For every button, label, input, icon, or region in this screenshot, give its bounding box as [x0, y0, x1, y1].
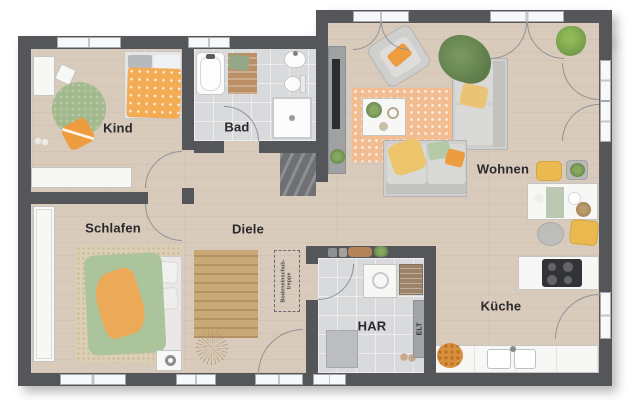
bowl: [576, 202, 591, 217]
pantry-herbs: [374, 246, 388, 257]
dried-plant: [196, 331, 228, 365]
tv-sideboard: [328, 46, 346, 174]
sofa-cushion: [455, 105, 493, 145]
shower-drain: [289, 115, 295, 121]
duvet-orange: [126, 67, 182, 119]
shelf-rack: [399, 264, 423, 295]
plant: [330, 149, 345, 164]
entrance-door: [255, 374, 303, 385]
freezer: [326, 330, 358, 368]
room-label-bad: Bad: [224, 120, 249, 135]
attic-stairs-hatch: Bodeneinschub-treppe: [274, 250, 300, 312]
table-runner: [546, 187, 564, 218]
floor-plan: ELT Bodeneinschub-treppe: [0, 0, 629, 400]
pantry-jar: [328, 248, 337, 257]
sink-faucet: [510, 346, 516, 352]
sideboard: [31, 167, 132, 188]
duvet-green: [83, 252, 166, 356]
window-schlafen: [60, 374, 126, 385]
plate: [534, 193, 544, 203]
washing-machine: [363, 264, 397, 298]
pillow: [128, 55, 152, 68]
dining-table: [527, 183, 598, 220]
wardrobe-door: [36, 209, 52, 359]
window-kind: [57, 37, 121, 48]
sofa-backrest: [493, 61, 505, 147]
terrace-door: [600, 292, 611, 339]
pantry-bread: [348, 247, 372, 257]
nightstand: [156, 350, 182, 371]
pillow: [154, 55, 180, 68]
shower: [272, 97, 312, 139]
shoe-cabinet: [280, 153, 316, 196]
plant: [570, 163, 585, 177]
bed-kind: [124, 51, 182, 119]
sink-basin: [487, 349, 511, 369]
window-right-upper: [600, 60, 611, 101]
hallway-runner: [194, 250, 258, 338]
bowl: [379, 122, 388, 131]
wall-kind-schlafen: [31, 192, 148, 204]
washbasin: [284, 51, 306, 68]
wall-partition-living: [316, 10, 328, 182]
wardrobe: [33, 206, 55, 362]
basin-faucet: [293, 51, 298, 56]
bathtub: [196, 52, 225, 95]
kitchen-island: [518, 256, 599, 290]
wall-stub: [182, 188, 194, 204]
wall-bad-diele-b: [259, 141, 316, 153]
wall-kind-bad: [182, 49, 194, 150]
room-label-schlafen: Schlafen: [85, 221, 141, 236]
towel: [228, 54, 250, 71]
room-label-diele: Diele: [232, 222, 264, 237]
washer-door: [372, 272, 389, 289]
room-label-wohnen: Wohnen: [477, 162, 529, 177]
room-label-har: HAR: [358, 319, 387, 334]
attic-stairs-label: Bodeneinschub-treppe: [281, 252, 294, 310]
wall-har-left-b: [306, 300, 318, 373]
coffee-table: [362, 98, 406, 136]
room-label-kind: Kind: [103, 121, 133, 136]
harvest-basket: [437, 343, 463, 368]
table-plant: [366, 102, 382, 118]
window-wohnen-1: [353, 11, 409, 22]
lamp: [165, 355, 176, 366]
desk: [33, 56, 55, 96]
window-bad: [188, 37, 230, 48]
elt-label: ELT: [416, 323, 423, 336]
window-right-lower: [600, 101, 611, 142]
pouf: [537, 222, 564, 246]
sink-basin: [514, 349, 536, 369]
toilet: [284, 76, 301, 92]
window-diele: [176, 374, 216, 385]
sofa-section-horizontal: [383, 140, 467, 197]
wall-left: [18, 36, 31, 386]
pantry-jar: [339, 248, 347, 257]
bathtub-basin: [200, 56, 221, 91]
wall-bad-diele-a: [194, 141, 224, 153]
dining-chair-yellow: [569, 219, 599, 247]
room-label-kueche: Küche: [481, 299, 522, 314]
planter: [566, 160, 588, 180]
window-wohnen-2: [490, 11, 564, 22]
cooktop: [542, 259, 582, 287]
bath-faucet: [206, 54, 215, 59]
slippers: [34, 137, 48, 146]
wall-har-kueche: [424, 246, 436, 373]
bowl: [387, 107, 399, 119]
blanket-fold-orange: [89, 265, 150, 341]
dining-chair-yellow: [536, 161, 562, 181]
tv: [332, 59, 340, 129]
window-har: [313, 374, 346, 385]
